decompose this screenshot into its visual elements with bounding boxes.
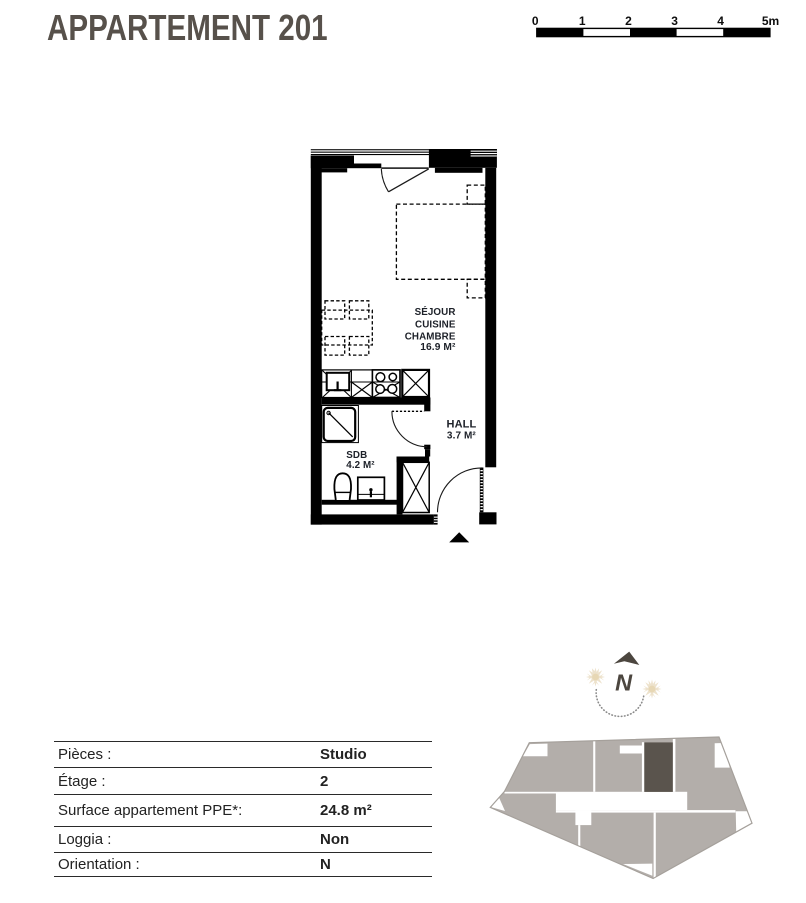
svg-text:2: 2	[625, 14, 632, 28]
svg-text:SÉJOUR: SÉJOUR	[415, 306, 456, 318]
svg-text:HALL: HALL	[447, 419, 477, 431]
svg-text:0: 0	[532, 14, 539, 28]
svg-text:4: 4	[717, 14, 724, 28]
svg-text:16.9 M²: 16.9 M²	[420, 342, 456, 353]
svg-text:4.2 M²: 4.2 M²	[346, 460, 375, 471]
svg-text:3.7 M²: 3.7 M²	[447, 431, 477, 442]
svg-text:3: 3	[671, 14, 678, 28]
svg-text:N: N	[615, 670, 633, 696]
svg-text:5m: 5m	[762, 14, 779, 28]
svg-text:1: 1	[579, 14, 586, 28]
svg-text:CUISINE: CUISINE	[415, 319, 456, 330]
